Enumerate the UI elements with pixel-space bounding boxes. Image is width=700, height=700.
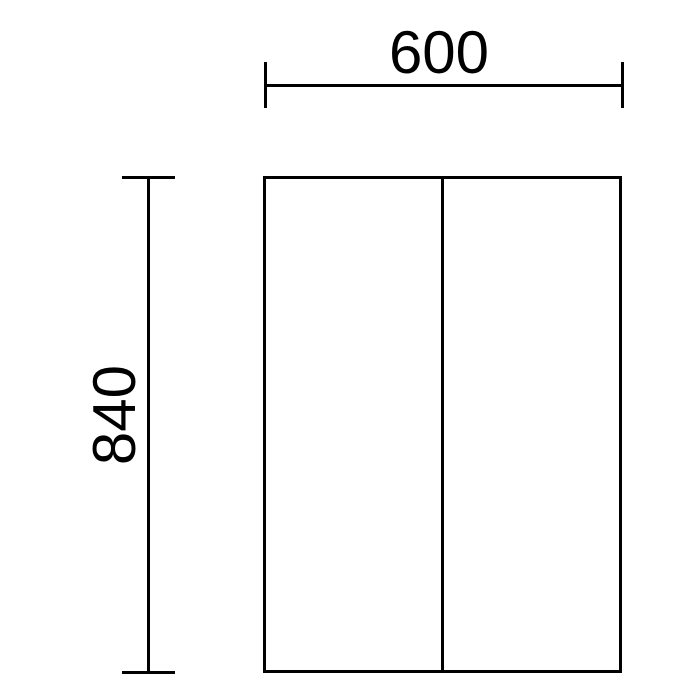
width-dimension-right-tick xyxy=(621,62,624,108)
height-dimension-top-tick xyxy=(122,176,175,179)
height-dimension-bottom-tick xyxy=(122,671,175,674)
width-dimension-label: 600 xyxy=(329,22,549,84)
width-dimension-left-tick xyxy=(264,62,267,108)
technical-drawing-canvas: 600 840 xyxy=(0,0,700,700)
door-divider-line xyxy=(441,179,444,671)
height-dimension-label: 840 xyxy=(84,335,146,495)
